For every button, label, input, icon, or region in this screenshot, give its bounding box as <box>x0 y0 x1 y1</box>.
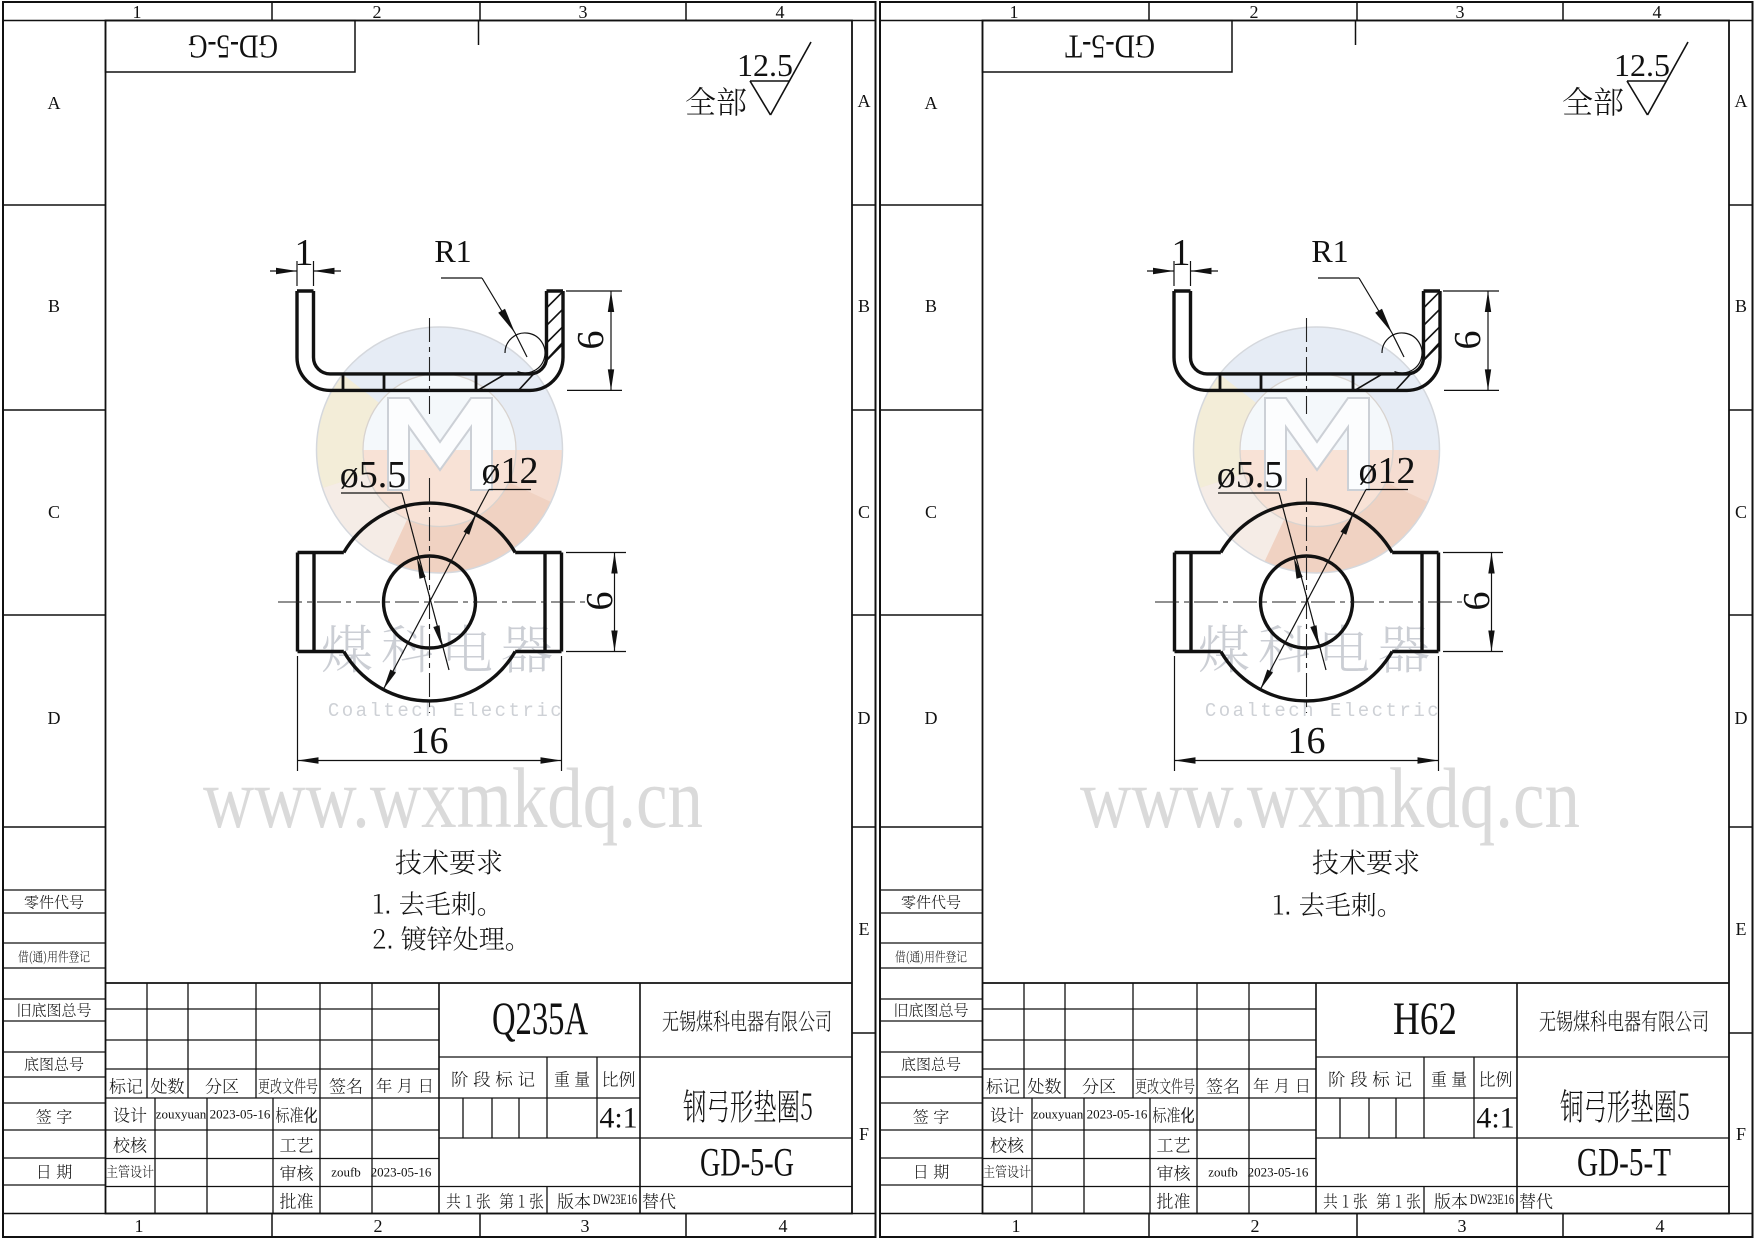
svg-text:F: F <box>859 1124 869 1144</box>
svg-text:zouxyuan: zouxyuan <box>156 1107 207 1122</box>
svg-text:阶 段 标 记: 阶 段 标 记 <box>451 1066 535 1091</box>
svg-text:铜弓形垫圈5: 铜弓形垫圈5 <box>1560 1080 1690 1131</box>
svg-text:全部: 全部 <box>1562 78 1624 123</box>
svg-text:钢弓形垫圈5: 钢弓形垫圈5 <box>683 1080 813 1131</box>
svg-text:E: E <box>1736 919 1747 939</box>
svg-text:分区: 分区 <box>205 1073 239 1098</box>
svg-text:替代: 替代 <box>1519 1188 1553 1213</box>
svg-text:共 1 张 第 1 张: 共 1 张 第 1 张 <box>1323 1188 1421 1213</box>
svg-text:底图总号: 底图总号 <box>901 1054 961 1075</box>
svg-text:4: 4 <box>1656 1216 1665 1236</box>
svg-text:4: 4 <box>779 1216 788 1236</box>
svg-text:1: 1 <box>1172 232 1191 274</box>
svg-text:技术要求: 技术要求 <box>1312 842 1420 881</box>
svg-text:C: C <box>1735 502 1747 522</box>
svg-text:ø5.5: ø5.5 <box>340 454 407 496</box>
svg-text:主管设计: 主管设计 <box>106 1162 154 1182</box>
svg-text:日 期: 日 期 <box>36 1160 72 1183</box>
svg-text:2023-05-16: 2023-05-16 <box>210 1107 271 1122</box>
svg-text:批准: 批准 <box>280 1188 314 1213</box>
svg-text:B: B <box>925 296 937 316</box>
svg-text:ø5.5: ø5.5 <box>1217 454 1284 496</box>
svg-text:zouxyuan: zouxyuan <box>1033 1107 1084 1122</box>
svg-text:设计: 设计 <box>990 1102 1024 1127</box>
svg-text:D: D <box>858 708 871 728</box>
svg-text:6: 6 <box>1456 592 1498 611</box>
svg-text:设计: 设计 <box>113 1102 147 1127</box>
svg-text:日 期: 日 期 <box>913 1160 949 1183</box>
svg-text:零件代号: 零件代号 <box>24 892 84 913</box>
svg-text:2: 2 <box>374 1216 383 1236</box>
svg-text:A: A <box>925 93 938 113</box>
svg-text:2: 2 <box>1250 2 1259 22</box>
svg-text:2023-05-16: 2023-05-16 <box>1248 1165 1309 1180</box>
svg-text:零件代号: 零件代号 <box>901 892 961 913</box>
svg-text:工艺: 工艺 <box>1157 1132 1191 1157</box>
svg-text:A: A <box>1735 91 1748 111</box>
svg-text:技术要求: 技术要求 <box>395 842 503 881</box>
svg-text:C: C <box>48 502 60 522</box>
svg-text:重 量: 重 量 <box>1431 1066 1467 1091</box>
svg-text:借(通)用件登记: 借(通)用件登记 <box>18 947 90 966</box>
svg-text:标记: 标记 <box>109 1073 143 1098</box>
svg-text:1: 1 <box>1012 1216 1021 1236</box>
svg-text:R1: R1 <box>1311 233 1348 269</box>
svg-text:GD-5-T: GD-5-T <box>1577 1140 1671 1185</box>
svg-text:签 字: 签 字 <box>913 1105 949 1128</box>
svg-text:旧底图总号: 旧底图总号 <box>16 1000 91 1021</box>
svg-text:1. 去毛刺。: 1. 去毛刺。 <box>1272 886 1403 923</box>
svg-text:主管设计: 主管设计 <box>983 1162 1031 1182</box>
svg-text:4: 4 <box>776 2 785 22</box>
svg-text:1: 1 <box>133 2 142 22</box>
svg-text:Coaltech Electric: Coaltech Electric <box>328 700 564 722</box>
svg-text:标准化: 标准化 <box>276 1102 318 1127</box>
svg-text:阶 段 标 记: 阶 段 标 记 <box>1328 1066 1412 1091</box>
svg-text:R1: R1 <box>434 233 471 269</box>
svg-text:重 量: 重 量 <box>554 1066 590 1091</box>
svg-text:DW23E16: DW23E16 <box>1470 1192 1514 1208</box>
svg-text:标记: 标记 <box>986 1073 1020 1098</box>
svg-text:分区: 分区 <box>1082 1073 1116 1098</box>
svg-text:www.wxmkdq.cn: www.wxmkdq.cn <box>1080 750 1580 846</box>
svg-text:D: D <box>1735 708 1748 728</box>
svg-text:2. 镀锌处理。: 2. 镀锌处理。 <box>372 920 531 957</box>
svg-text:校核: 校核 <box>113 1132 148 1157</box>
svg-text:ø12: ø12 <box>1359 450 1416 492</box>
svg-text:3: 3 <box>1456 2 1465 22</box>
svg-text:年 月 日: 年 月 日 <box>1253 1074 1311 1097</box>
svg-text:zoufb: zoufb <box>331 1165 361 1180</box>
svg-text:F: F <box>1736 1124 1746 1144</box>
svg-text:4:1: 4:1 <box>1476 1102 1514 1135</box>
svg-text:校核: 校核 <box>990 1132 1025 1157</box>
svg-text:zoufb: zoufb <box>1208 1165 1238 1180</box>
svg-text:16: 16 <box>411 720 449 762</box>
svg-text:2: 2 <box>373 2 382 22</box>
svg-text:审核: 审核 <box>280 1160 315 1185</box>
svg-text:借(通)用件登记: 借(通)用件登记 <box>895 947 967 966</box>
svg-text:3: 3 <box>581 1216 590 1236</box>
svg-text:GD-5-G: GD-5-G <box>700 1140 794 1185</box>
svg-text:更改文件号: 更改文件号 <box>258 1073 318 1098</box>
svg-text:6: 6 <box>570 331 612 350</box>
svg-text:B: B <box>48 296 60 316</box>
svg-text:比例: 比例 <box>602 1066 636 1091</box>
svg-text:GD-5-G: GD-5-G <box>188 28 278 65</box>
svg-text:处数: 处数 <box>151 1073 185 1098</box>
svg-text:DW23E16: DW23E16 <box>593 1192 637 1208</box>
svg-text:版本: 版本 <box>1434 1188 1468 1213</box>
svg-text:ø12: ø12 <box>482 450 539 492</box>
svg-text:Q235A: Q235A <box>492 993 588 1045</box>
svg-text:2023-05-16: 2023-05-16 <box>1087 1107 1148 1122</box>
svg-text:批准: 批准 <box>1157 1188 1191 1213</box>
svg-text:D: D <box>925 708 938 728</box>
svg-text:无锡煤科电器有限公司: 无锡煤科电器有限公司 <box>1539 1004 1709 1037</box>
svg-text:D: D <box>48 708 61 728</box>
svg-text:1: 1 <box>135 1216 144 1236</box>
svg-text:年 月 日: 年 月 日 <box>376 1074 434 1097</box>
svg-text:1. 去毛刺。: 1. 去毛刺。 <box>372 885 503 922</box>
svg-text:3: 3 <box>579 2 588 22</box>
svg-text:Coaltech Electric: Coaltech Electric <box>1205 700 1441 722</box>
svg-text:审核: 审核 <box>1157 1160 1192 1185</box>
svg-text:E: E <box>859 919 870 939</box>
svg-text:A: A <box>48 93 61 113</box>
svg-text:标准化: 标准化 <box>1153 1102 1195 1127</box>
svg-text:4:1: 4:1 <box>599 1102 637 1135</box>
svg-text:6: 6 <box>1447 331 1489 350</box>
svg-text:6: 6 <box>579 592 621 611</box>
svg-text:更改文件号: 更改文件号 <box>1135 1073 1195 1098</box>
svg-text:版本: 版本 <box>557 1188 591 1213</box>
svg-text:全部: 全部 <box>685 78 747 123</box>
svg-text:工艺: 工艺 <box>280 1132 314 1157</box>
svg-text:4: 4 <box>1653 2 1662 22</box>
svg-text:B: B <box>1735 296 1747 316</box>
svg-text:替代: 替代 <box>642 1188 676 1213</box>
svg-text:处数: 处数 <box>1028 1073 1062 1098</box>
svg-text:1: 1 <box>1010 2 1019 22</box>
svg-text:2: 2 <box>1251 1216 1260 1236</box>
svg-text:无锡煤科电器有限公司: 无锡煤科电器有限公司 <box>662 1004 832 1037</box>
svg-text:共 1 张 第 1 张: 共 1 张 第 1 张 <box>446 1188 544 1213</box>
svg-text:16: 16 <box>1288 720 1326 762</box>
svg-text:签名: 签名 <box>329 1073 363 1098</box>
svg-text:H62: H62 <box>1393 993 1457 1045</box>
svg-text:签 字: 签 字 <box>36 1105 72 1128</box>
svg-text:B: B <box>858 296 870 316</box>
svg-text:3: 3 <box>1458 1216 1467 1236</box>
svg-text:www.wxmkdq.cn: www.wxmkdq.cn <box>203 750 703 846</box>
svg-text:2023-05-16: 2023-05-16 <box>371 1165 432 1180</box>
svg-text:C: C <box>858 502 870 522</box>
svg-text:底图总号: 底图总号 <box>24 1054 84 1075</box>
svg-text:1: 1 <box>295 232 314 274</box>
svg-text:C: C <box>925 502 937 522</box>
svg-text:签名: 签名 <box>1206 1073 1240 1098</box>
svg-text:旧底图总号: 旧底图总号 <box>893 1000 968 1021</box>
svg-text:A: A <box>858 91 871 111</box>
svg-text:比例: 比例 <box>1479 1066 1513 1091</box>
svg-text:GD-5-T: GD-5-T <box>1065 28 1155 65</box>
